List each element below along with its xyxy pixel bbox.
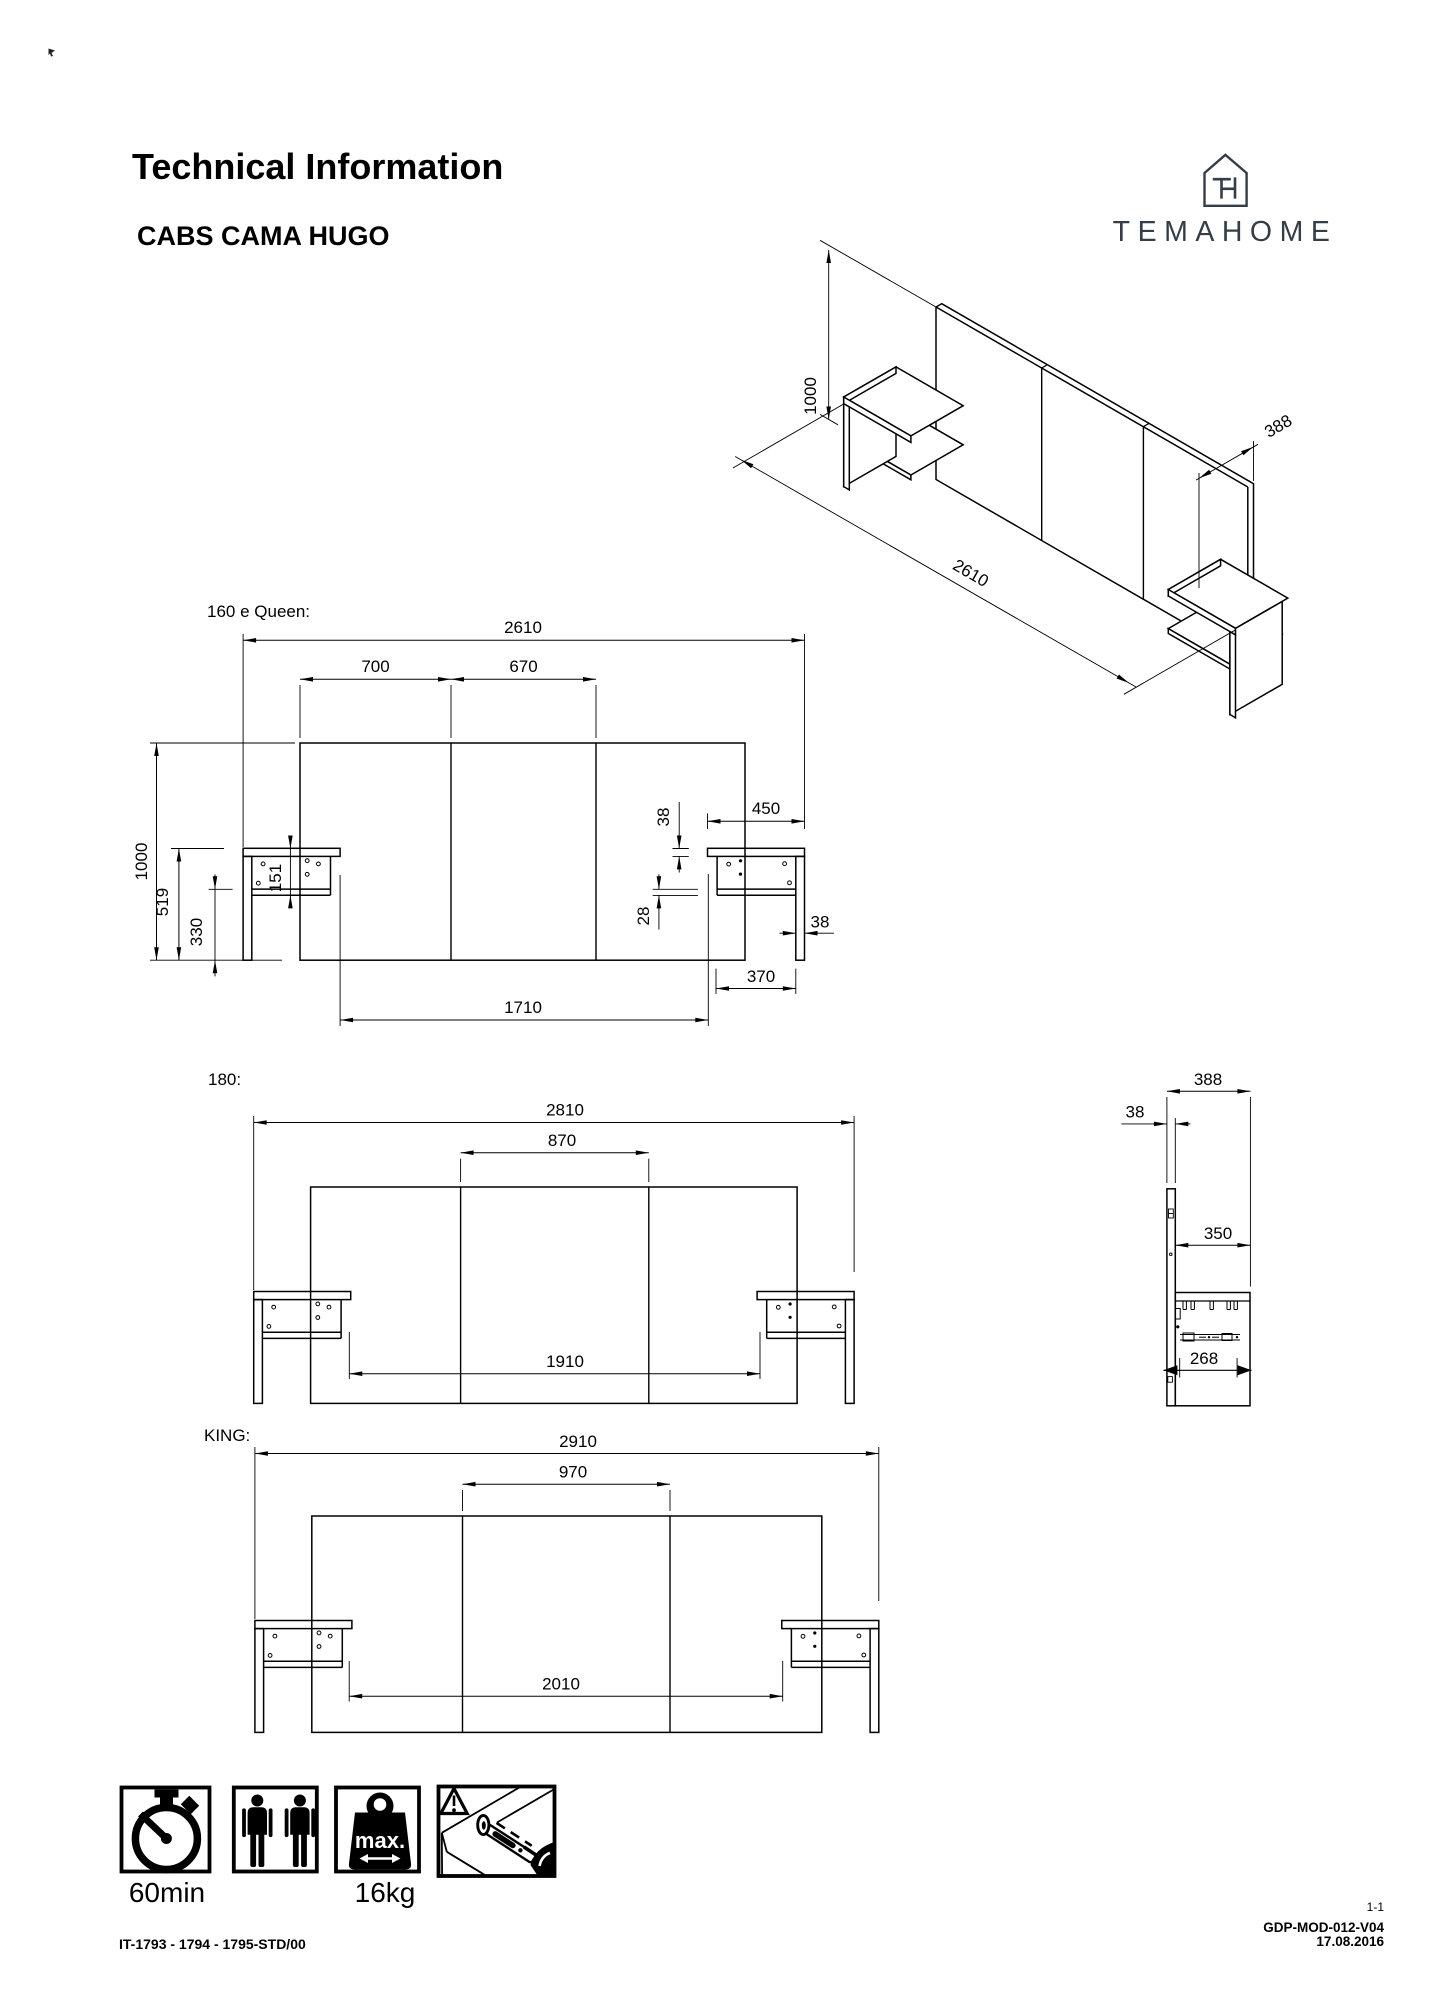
svg-text:17.08.2016: 17.08.2016 bbox=[1316, 1934, 1384, 1949]
svg-text:38: 38 bbox=[654, 808, 673, 827]
svg-text:TEMAHOME: TEMAHOME bbox=[1113, 216, 1338, 248]
svg-text:1000: 1000 bbox=[132, 843, 151, 881]
svg-text:max.: max. bbox=[355, 1828, 405, 1853]
svg-text:330: 330 bbox=[187, 918, 206, 946]
svg-text:Technical Information: Technical Information bbox=[132, 146, 503, 187]
svg-text:1910: 1910 bbox=[546, 1352, 584, 1371]
svg-text:268: 268 bbox=[1190, 1349, 1218, 1368]
svg-text:60min: 60min bbox=[129, 1877, 205, 1908]
svg-text:180:: 180: bbox=[208, 1070, 241, 1089]
svg-text:450: 450 bbox=[752, 799, 780, 818]
svg-text:2610: 2610 bbox=[950, 556, 992, 591]
svg-text:GDP-MOD-012-V04: GDP-MOD-012-V04 bbox=[1263, 1920, 1384, 1935]
svg-text:1000: 1000 bbox=[801, 377, 820, 415]
svg-text:16kg: 16kg bbox=[355, 1877, 416, 1908]
svg-text:2010: 2010 bbox=[542, 1675, 580, 1694]
svg-text:670: 670 bbox=[509, 657, 537, 676]
svg-text:700: 700 bbox=[361, 657, 389, 676]
svg-text:38: 38 bbox=[1126, 1103, 1145, 1122]
svg-text:151: 151 bbox=[266, 864, 285, 892]
svg-text:2610: 2610 bbox=[504, 618, 542, 637]
svg-text:2810: 2810 bbox=[546, 1101, 584, 1120]
svg-text:388: 388 bbox=[1261, 411, 1295, 442]
svg-text:28: 28 bbox=[634, 907, 653, 926]
svg-text:870: 870 bbox=[548, 1131, 576, 1150]
svg-text:1-1: 1-1 bbox=[1367, 1900, 1385, 1914]
svg-text:160 e Queen:: 160 e Queen: bbox=[207, 602, 310, 621]
svg-text:370: 370 bbox=[747, 967, 775, 986]
svg-text:38: 38 bbox=[811, 913, 830, 932]
svg-text:2910: 2910 bbox=[559, 1432, 597, 1451]
svg-text:388: 388 bbox=[1194, 1070, 1222, 1089]
svg-text:350: 350 bbox=[1204, 1224, 1232, 1243]
svg-text:1710: 1710 bbox=[504, 998, 542, 1017]
svg-text:IT-1793 - 1794 - 1795-STD/00: IT-1793 - 1794 - 1795-STD/00 bbox=[119, 1936, 306, 1952]
svg-text:970: 970 bbox=[559, 1463, 587, 1482]
svg-text:KING:: KING: bbox=[204, 1426, 250, 1445]
svg-text:519: 519 bbox=[153, 888, 172, 916]
svg-text:CABS CAMA HUGO: CABS CAMA HUGO bbox=[137, 221, 390, 251]
